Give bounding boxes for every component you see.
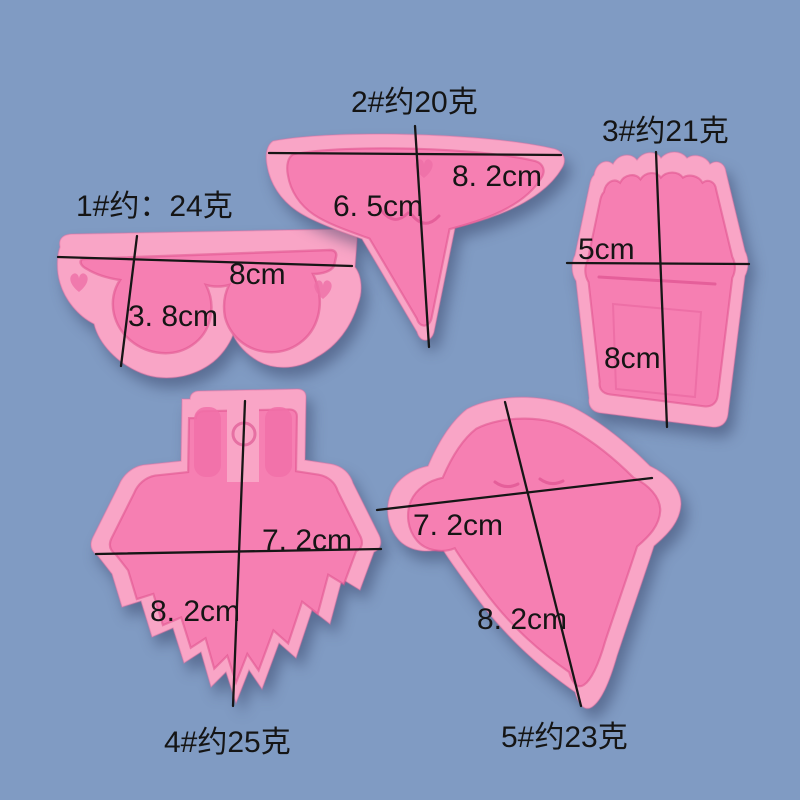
- mold-5-width-dim: 7. 2cm: [413, 509, 503, 542]
- mold-4-height-dim: 8. 2cm: [150, 595, 240, 628]
- mold-3-width-dim: 5cm: [578, 233, 635, 266]
- mold-1-width-dim: 8cm: [229, 258, 286, 291]
- mold-2-weight-label: 2#约20克: [351, 86, 478, 119]
- mold-1-weight-label: 1#约：24克: [76, 190, 233, 223]
- product-photo-scene: 1#约：24克 8cm 3. 8cm 2#约20克 8. 2cm 6. 5cm …: [0, 0, 800, 800]
- strap-pocket: [265, 407, 292, 477]
- mold-2-width-dim: 8. 2cm: [452, 160, 542, 193]
- mold-1-height-dim: 3. 8cm: [128, 300, 218, 333]
- milkshake-mold: [572, 152, 748, 427]
- mold-2-height-dim: 6. 5cm: [333, 190, 423, 223]
- mold-5-weight-label: 5#约23克: [501, 721, 628, 754]
- mold-3-weight-label: 3#约21克: [602, 115, 729, 148]
- strap-pocket: [194, 407, 221, 477]
- ghost-mold: [388, 397, 681, 708]
- mold-4-weight-label: 4#约25克: [164, 726, 291, 759]
- mold-5-height-dim: 8. 2cm: [477, 603, 567, 636]
- mold-4-width-dim: 7. 2cm: [262, 524, 352, 557]
- mold-3-height-dim: 8cm: [604, 342, 661, 375]
